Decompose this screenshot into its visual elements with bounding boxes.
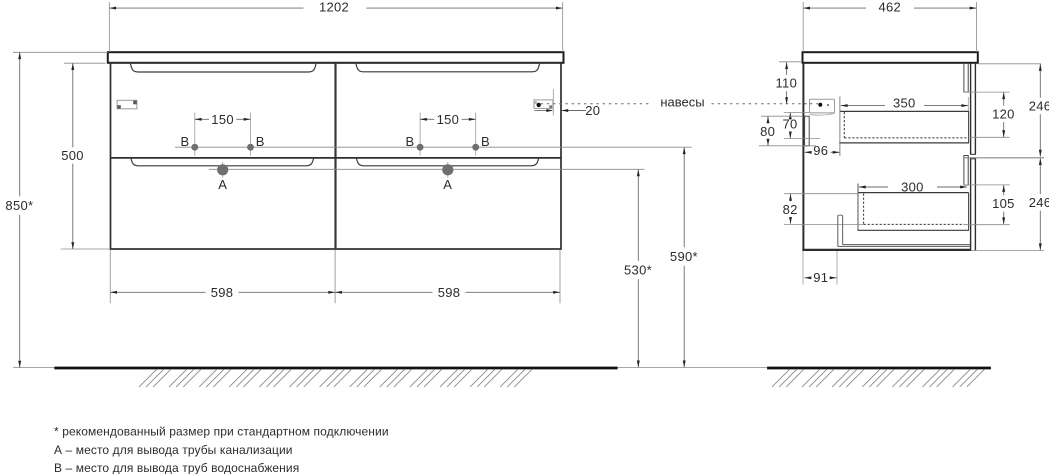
- svg-text:91: 91: [813, 270, 828, 285]
- svg-text:350: 350: [893, 95, 916, 110]
- svg-text:A: A: [218, 177, 227, 192]
- svg-text:246: 246: [1029, 99, 1049, 114]
- svg-text:150: 150: [211, 112, 234, 127]
- svg-text:B: B: [481, 134, 490, 149]
- svg-text:80: 80: [760, 124, 775, 139]
- svg-text:850*: 850*: [5, 198, 33, 213]
- svg-text:* рекомендованный размер при с: * рекомендованный размер при стандартном…: [54, 424, 389, 438]
- svg-text:навесы: навесы: [660, 95, 704, 110]
- svg-text:20: 20: [585, 103, 600, 118]
- svg-text:530*: 530*: [624, 263, 652, 278]
- svg-text:82: 82: [783, 202, 798, 217]
- svg-text:120: 120: [992, 106, 1015, 121]
- svg-text:В – место для вывода труб водо: В – место для вывода труб водоснабжения: [54, 461, 299, 474]
- svg-text:B: B: [181, 134, 190, 149]
- svg-text:110: 110: [775, 76, 797, 91]
- svg-text:500: 500: [61, 148, 84, 163]
- svg-text:B: B: [406, 134, 415, 149]
- svg-text:B: B: [256, 134, 265, 149]
- svg-text:300: 300: [901, 180, 924, 195]
- svg-text:598: 598: [211, 285, 234, 300]
- svg-text:А – место для вывода трубы кан: А – место для вывода трубы канализации: [54, 443, 293, 457]
- svg-text:105: 105: [992, 196, 1015, 211]
- svg-text:462: 462: [879, 0, 902, 14]
- svg-text:A: A: [443, 177, 452, 192]
- svg-text:590*: 590*: [670, 249, 698, 264]
- svg-text:246: 246: [1029, 195, 1049, 210]
- svg-text:150: 150: [437, 112, 460, 127]
- svg-text:70: 70: [782, 117, 797, 132]
- svg-text:598: 598: [438, 285, 461, 300]
- svg-text:1202: 1202: [319, 0, 349, 14]
